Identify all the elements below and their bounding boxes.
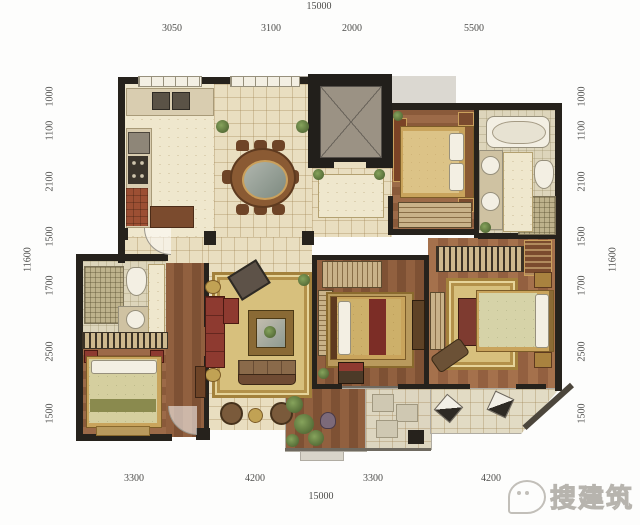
watermark-text: 搜建筑 bbox=[550, 478, 634, 515]
wall-bedroom3-left bbox=[312, 255, 317, 387]
living-side-table-top bbox=[205, 280, 221, 294]
living-sofa-red bbox=[205, 296, 225, 368]
living-plant-ne bbox=[298, 274, 310, 286]
bathtub-basin bbox=[492, 121, 546, 144]
bath-sink-1 bbox=[481, 156, 500, 175]
pillar-corridor-bottom bbox=[196, 428, 210, 440]
left-bed-runner bbox=[90, 399, 156, 412]
bedroom2-bed-frame bbox=[400, 126, 474, 198]
wall-master-south-a bbox=[428, 384, 470, 389]
kitchen-counter-top bbox=[126, 88, 214, 116]
dining-window bbox=[230, 76, 300, 87]
dining-chair-bottom-1 bbox=[236, 204, 249, 215]
master-headboard bbox=[549, 291, 553, 351]
kitchen-island bbox=[150, 206, 194, 228]
garden-stepping-stone-1 bbox=[372, 394, 394, 412]
living-side-table-bottom bbox=[205, 368, 221, 382]
wall-master-south-b bbox=[516, 384, 546, 389]
bedroom2-pillow-2 bbox=[449, 163, 464, 191]
kitchen-red-mat bbox=[126, 188, 148, 226]
bedroom2-pillow-1 bbox=[449, 133, 464, 161]
bathtub bbox=[486, 116, 550, 148]
bedroom3-runner bbox=[369, 299, 386, 355]
left-bed-pillows bbox=[91, 360, 157, 374]
kitchen-sink bbox=[152, 92, 170, 110]
bath-mat bbox=[503, 152, 533, 232]
elevator-shaft bbox=[308, 74, 392, 168]
master-cabinet-ne bbox=[524, 240, 552, 276]
bedroom3-plant bbox=[318, 368, 329, 379]
master-wardrobe bbox=[436, 246, 524, 272]
bath-plant bbox=[480, 222, 491, 233]
left-sink bbox=[126, 310, 145, 329]
living-barrel-chair-1 bbox=[220, 402, 243, 425]
garden-stepping-stone-2 bbox=[396, 404, 418, 422]
floor-plan-page: 15000 3050 3100 2000 5500 3300 4200 3300… bbox=[0, 0, 640, 525]
master-bed-frame bbox=[476, 290, 554, 352]
bath-sink-2 bbox=[481, 192, 500, 211]
master-nightstand-bottom bbox=[534, 352, 552, 368]
watermark: 搜建筑 bbox=[508, 478, 634, 515]
master-pillows bbox=[535, 294, 549, 348]
wall-bedroom3-top bbox=[312, 255, 426, 260]
bedroom2-nightstand-top bbox=[458, 112, 474, 126]
wall-bedroom3-south-b bbox=[398, 384, 429, 389]
foyer-rug bbox=[318, 174, 384, 218]
garden-plant-4 bbox=[286, 434, 299, 447]
dining-table-top bbox=[242, 160, 288, 200]
bedroom3-stool bbox=[338, 362, 364, 384]
left-bed-rug bbox=[96, 426, 150, 436]
living-sofa-chaise bbox=[223, 298, 239, 324]
left-toilet bbox=[126, 267, 147, 296]
elevator-door bbox=[334, 162, 366, 168]
master-nightstand-top bbox=[534, 272, 552, 288]
kitchen-stove bbox=[128, 156, 148, 184]
exterior-ledge-right bbox=[392, 76, 456, 104]
garden-stepping-stone-3 bbox=[376, 420, 398, 438]
living-round-table bbox=[248, 408, 263, 423]
dining-table bbox=[230, 148, 296, 208]
bedroom2-wardrobe bbox=[398, 202, 472, 228]
wall-topright bbox=[392, 103, 562, 110]
kitchen-cooktop-small bbox=[172, 92, 190, 110]
wall-right bbox=[555, 103, 562, 391]
bedroom3-wardrobe-top bbox=[322, 261, 382, 288]
wall-bedroom3-south-a bbox=[312, 384, 342, 389]
living-loveseat-back bbox=[238, 374, 296, 385]
pillar-garden-right bbox=[408, 430, 424, 444]
left-bed-wardrobe bbox=[82, 332, 168, 349]
pillar-living-ne bbox=[302, 231, 314, 245]
left-bed-frame bbox=[86, 356, 162, 428]
hall-console bbox=[195, 366, 206, 398]
balcony-door-glass bbox=[342, 386, 398, 388]
garden-plant-3 bbox=[308, 430, 324, 446]
living-table-plant bbox=[264, 326, 276, 338]
foyer-plant-left bbox=[313, 169, 324, 180]
bedroom3-pillows bbox=[338, 301, 351, 355]
dining-chair-top-1 bbox=[236, 140, 249, 151]
bedroom2-headboard bbox=[465, 127, 473, 197]
wall-leftwing-top bbox=[76, 254, 168, 261]
bedroom3-bed-frame bbox=[330, 296, 406, 360]
watermark-logo-icon bbox=[508, 480, 546, 514]
kitchen-fridge bbox=[128, 132, 150, 154]
living-coffee-table bbox=[248, 310, 294, 356]
bedroom2-plant bbox=[393, 111, 403, 121]
toilet bbox=[534, 160, 554, 189]
dining-plant-right bbox=[296, 120, 309, 133]
floor-plan bbox=[0, 0, 640, 525]
master-dresser bbox=[430, 292, 445, 350]
elevator-cab bbox=[320, 86, 382, 158]
foyer-plant-right bbox=[374, 169, 385, 180]
pillar-entry bbox=[118, 228, 128, 240]
entry-step bbox=[300, 451, 344, 461]
pillar-living-nw bbox=[204, 231, 216, 245]
wall-bedroom2-bottom bbox=[388, 229, 478, 235]
dining-plant-left bbox=[216, 120, 229, 133]
master-mattress bbox=[479, 293, 537, 347]
kitchen-window bbox=[138, 76, 202, 87]
bedroom3-tv-cabinet bbox=[412, 300, 425, 350]
garden-plant-1 bbox=[286, 396, 303, 413]
garden-pot bbox=[320, 412, 336, 429]
